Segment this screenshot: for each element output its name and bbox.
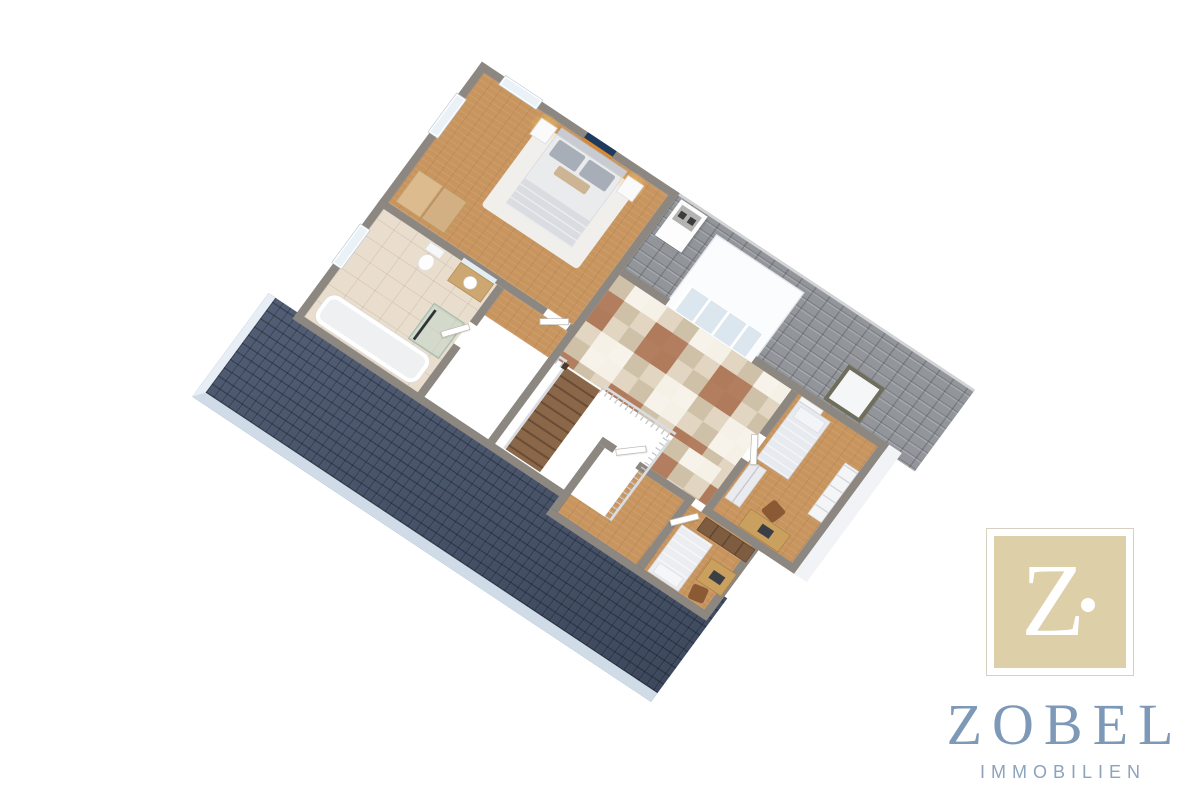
brand-logo: Z ZOBEL IMMOBILIEN xyxy=(930,528,1190,783)
brand-monogram-frame: Z xyxy=(986,528,1134,676)
door xyxy=(540,318,569,325)
laptop xyxy=(757,524,774,539)
washbasin xyxy=(460,274,479,293)
chimney-flue xyxy=(687,217,697,226)
real-estate-render-page: Z ZOBEL IMMOBILIEN xyxy=(0,0,1200,800)
brand-monogram-letter: Z xyxy=(980,536,1126,666)
brand-name: ZOBEL xyxy=(930,696,1190,754)
laptop xyxy=(708,570,725,585)
brand-monogram: Z xyxy=(994,536,1126,668)
floor-plan xyxy=(225,62,975,739)
brand-tagline: IMMOBILIEN xyxy=(930,762,1190,783)
chimney-flue xyxy=(677,211,687,220)
